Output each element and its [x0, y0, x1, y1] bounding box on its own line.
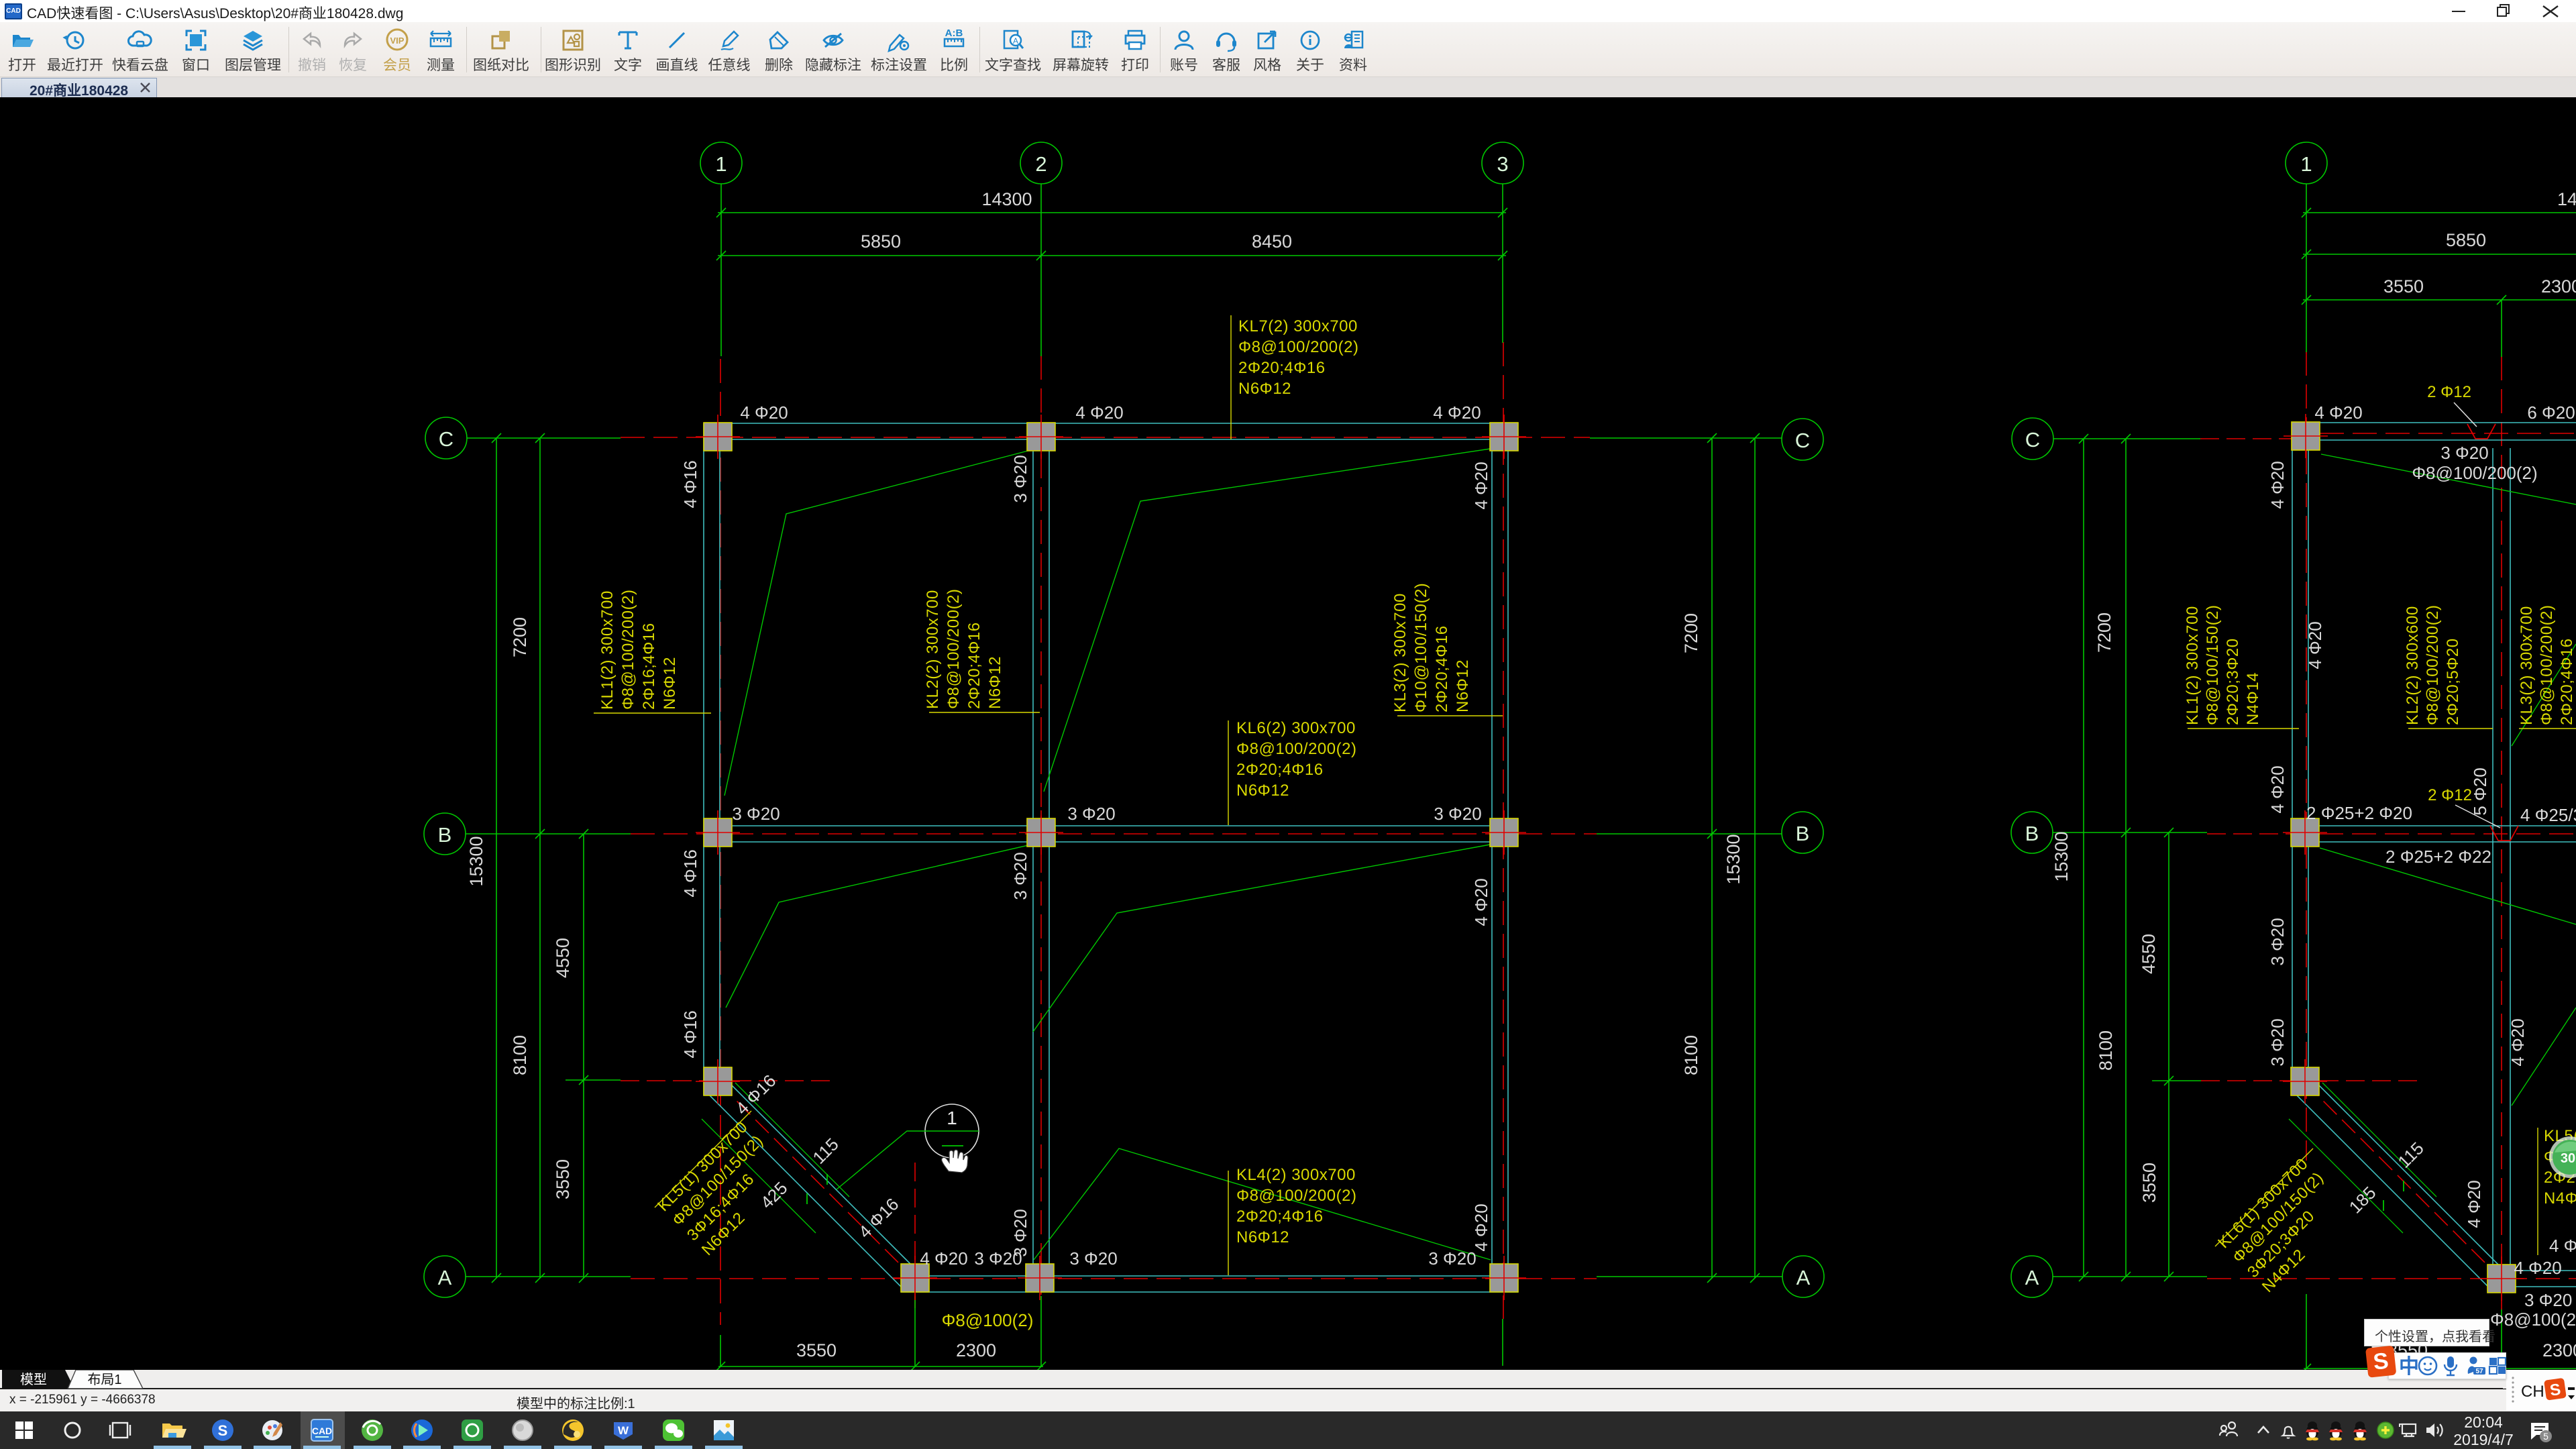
svg-text:3 Φ20: 3 Φ20 [732, 804, 780, 824]
svg-text:2Φ20;4Φ16: 2Φ20;4Φ16 [1236, 1207, 1324, 1226]
svg-text:B: B [2025, 822, 2039, 845]
svg-text:14300: 14300 [981, 189, 1032, 209]
svg-text:3 Φ20: 3 Φ20 [1434, 804, 1481, 824]
svg-text:7200: 7200 [2094, 612, 2114, 653]
svg-text:N6Φ12: N6Φ12 [661, 657, 679, 710]
svg-text:B: B [438, 823, 452, 847]
svg-text:5: 5 [2543, 1431, 2548, 1442]
svg-text:模型: 模型 [20, 1372, 47, 1387]
svg-text:VIP: VIP [390, 36, 405, 46]
svg-text:7200: 7200 [510, 617, 530, 657]
svg-text:3 Φ20: 3 Φ20 [1010, 455, 1030, 502]
svg-text:C: C [1795, 429, 1810, 452]
svg-text:Φ8@100/150(2): Φ8@100/150(2) [2204, 605, 2222, 725]
svg-text:S: S [2372, 1348, 2390, 1375]
svg-text:Φ8@100/200(2): Φ8@100/200(2) [945, 589, 963, 709]
svg-text:Φ8@100/200(2): Φ8@100/200(2) [1238, 338, 1358, 356]
svg-text:C: C [439, 427, 453, 451]
svg-text:N6Φ12: N6Φ12 [1236, 1228, 1289, 1246]
svg-text:KL1(2) 300x700: KL1(2) 300x700 [598, 590, 616, 710]
svg-text:4 Φ20: 4 Φ20 [1471, 878, 1491, 926]
svg-text:N4Φ14: N4Φ14 [2244, 672, 2262, 725]
svg-text:1: 1 [947, 1108, 957, 1128]
svg-text:Φ8@100/200(2): Φ8@100/200(2) [1236, 740, 1356, 758]
svg-text:5 Φ20: 5 Φ20 [2470, 767, 2490, 815]
svg-text:8450: 8450 [1252, 231, 1292, 252]
svg-text:2300: 2300 [956, 1340, 996, 1360]
svg-text:KL4(2) 300x700: KL4(2) 300x700 [1236, 1166, 1356, 1184]
svg-text:A: A [1013, 36, 1018, 46]
svg-text:4 Φ16: 4 Φ16 [680, 1010, 700, 1058]
svg-text:1: 1 [715, 152, 727, 176]
svg-text:4 Φ20: 4 Φ20 [1075, 402, 1123, 423]
svg-text:2300: 2300 [2542, 1340, 2576, 1360]
svg-text:8100: 8100 [510, 1035, 530, 1075]
svg-text:1: 1 [2300, 152, 2312, 176]
svg-text:4 Φ25/3 Φ20: 4 Φ25/3 Φ20 [2520, 805, 2576, 825]
svg-text:4 Φ16: 4 Φ16 [680, 460, 700, 508]
svg-text:8100: 8100 [2096, 1030, 2116, 1071]
svg-text:4 Φ20: 4 Φ20 [740, 402, 788, 423]
svg-text:2: 2 [1035, 152, 1046, 176]
svg-text:2019/4/7: 2019/4/7 [2453, 1431, 2514, 1448]
svg-text:4 Φ20: 4 Φ20 [2267, 461, 2288, 508]
svg-text:CH: CH [2521, 1383, 2544, 1401]
svg-text:Φ8@100/200(2): Φ8@100/200(2) [2412, 463, 2537, 483]
svg-text:8100: 8100 [1681, 1035, 1701, 1075]
svg-text:4 Φ25: 4 Φ25 [2549, 1236, 2576, 1256]
svg-text:KL1(2) 300x700: KL1(2) 300x700 [2184, 606, 2202, 725]
svg-text:Φ8@100/200(2): Φ8@100/200(2) [1236, 1187, 1356, 1205]
svg-text:14300: 14300 [2557, 189, 2576, 209]
svg-text:4 Φ20: 4 Φ20 [2464, 1180, 2484, 1228]
svg-text:2 Φ25+2 Φ20: 2 Φ25+2 Φ20 [2306, 803, 2412, 823]
svg-text:2Φ20;5Φ20: 2Φ20;5Φ20 [2444, 638, 2462, 725]
svg-text:C: C [2025, 428, 2040, 451]
svg-text:3 Φ20: 3 Φ20 [1428, 1248, 1476, 1269]
svg-text:4 Φ20: 4 Φ20 [2305, 621, 2325, 669]
svg-text:3550: 3550 [2383, 276, 2424, 297]
svg-text:4 Φ20: 4 Φ20 [2267, 765, 2288, 813]
svg-text:3 Φ20: 3 Φ20 [2524, 1290, 2572, 1310]
svg-text:3 Φ20: 3 Φ20 [2267, 1018, 2288, 1066]
svg-text:2Φ20;4Φ16: 2Φ20;4Φ16 [965, 622, 983, 709]
svg-text:2Φ20;4Φ16: 2Φ20;4Φ16 [1236, 761, 1324, 779]
svg-text:2Φ20;4Φ16: 2Φ20;4Φ16 [2558, 638, 2576, 725]
svg-text:4 Φ16: 4 Φ16 [680, 849, 700, 897]
svg-text:Φ10@100/150(2): Φ10@100/150(2) [1412, 583, 1430, 712]
svg-text:3 Φ20: 3 Φ20 [1010, 852, 1030, 900]
svg-text:2Φ16;4Φ16: 2Φ16;4Φ16 [640, 623, 658, 710]
svg-text:2300: 2300 [2541, 276, 2576, 297]
svg-text:3 Φ20: 3 Φ20 [1010, 1209, 1030, 1256]
svg-text:3 Φ20: 3 Φ20 [1067, 804, 1115, 824]
svg-text:15300: 15300 [2051, 831, 2072, 881]
svg-text:3 Φ20: 3 Φ20 [2267, 918, 2288, 965]
svg-text:4 Φ20: 4 Φ20 [1471, 1203, 1491, 1251]
svg-text:KL6(2) 300x700: KL6(2) 300x700 [1236, 719, 1356, 737]
svg-text:4550: 4550 [2139, 934, 2159, 974]
svg-text:N4Φ14: N4Φ14 [2544, 1189, 2576, 1207]
svg-text:5850: 5850 [861, 231, 901, 252]
svg-text:B: B [1796, 822, 1810, 845]
svg-text:3 Φ20: 3 Φ20 [2440, 443, 2488, 463]
svg-text:KL2(2) 300x600: KL2(2) 300x600 [2404, 606, 2422, 725]
svg-text:15300: 15300 [1723, 834, 1743, 884]
svg-text:4 Φ20: 4 Φ20 [2508, 1018, 2528, 1066]
svg-text:3: 3 [1497, 152, 1508, 176]
svg-text:2Φ20;4Φ16: 2Φ20;4Φ16 [1433, 625, 1451, 712]
svg-text:15300: 15300 [466, 836, 486, 886]
svg-text:Φ8@100(2): Φ8@100(2) [942, 1310, 1034, 1330]
svg-text:3 Φ20: 3 Φ20 [1069, 1248, 1117, 1269]
svg-text:KL3(2) 300x700: KL3(2) 300x700 [2518, 606, 2536, 725]
svg-text:N6Φ12: N6Φ12 [986, 656, 1004, 709]
svg-text:KL2(2) 300x700: KL2(2) 300x700 [924, 590, 942, 709]
svg-text:N6Φ12: N6Φ12 [1238, 380, 1291, 398]
svg-text:4 Φ20: 4 Φ20 [2314, 402, 2362, 423]
svg-text:A: A [1796, 1266, 1811, 1289]
svg-text:3550: 3550 [553, 1159, 573, 1199]
svg-text:6 Φ20: 6 Φ20 [2527, 402, 2575, 423]
svg-text:57: 57 [2475, 1368, 2483, 1375]
svg-text:CAD: CAD [312, 1426, 332, 1436]
svg-text:2Φ20;3Φ20: 2Φ20;3Φ20 [2224, 638, 2242, 725]
svg-text:Φ8@100/200(2): Φ8@100/200(2) [2538, 605, 2556, 725]
svg-text:Φ8@100(2): Φ8@100(2) [2490, 1309, 2576, 1330]
svg-text:布局1: 布局1 [87, 1372, 121, 1387]
svg-text:2 Φ12: 2 Φ12 [2428, 786, 2472, 804]
svg-text:A: A [2025, 1266, 2039, 1289]
svg-text:5850: 5850 [2446, 230, 2486, 250]
svg-text:30: 30 [2561, 1151, 2575, 1166]
svg-text:4 Φ20: 4 Φ20 [1471, 462, 1491, 509]
svg-text:N6Φ12: N6Φ12 [1236, 782, 1289, 800]
svg-text:4 Φ20: 4 Φ20 [2514, 1258, 2561, 1278]
svg-text:S: S [218, 1422, 228, 1439]
svg-text:Φ8@100/200(2): Φ8@100/200(2) [2424, 605, 2442, 725]
svg-text:N6Φ12: N6Φ12 [1454, 659, 1472, 712]
svg-text:3550: 3550 [796, 1340, 837, 1360]
svg-text:20:04: 20:04 [2464, 1413, 2503, 1431]
svg-text:W: W [618, 1424, 629, 1437]
svg-text:2 Φ25+2 Φ22: 2 Φ25+2 Φ22 [2385, 847, 2491, 867]
svg-text:3550: 3550 [2139, 1163, 2159, 1203]
svg-text:KL7(2) 300x700: KL7(2) 300x700 [1238, 317, 1358, 335]
svg-text:7200: 7200 [1681, 613, 1701, 653]
svg-text:A:B: A:B [945, 28, 963, 39]
svg-text:中: 中 [2399, 1356, 2419, 1378]
svg-text:4 Φ20: 4 Φ20 [920, 1248, 967, 1269]
svg-text:4 Φ20: 4 Φ20 [1433, 402, 1481, 423]
svg-text:4550: 4550 [553, 938, 573, 978]
svg-text:2Φ20;4Φ16: 2Φ20;4Φ16 [1238, 359, 1326, 377]
svg-text:2 Φ12: 2 Φ12 [2427, 383, 2471, 401]
svg-text:Φ8@100/200(2): Φ8@100/200(2) [619, 590, 637, 710]
svg-text:A: A [438, 1266, 452, 1289]
svg-text:KL3(2) 300x700: KL3(2) 300x700 [1391, 593, 1409, 712]
